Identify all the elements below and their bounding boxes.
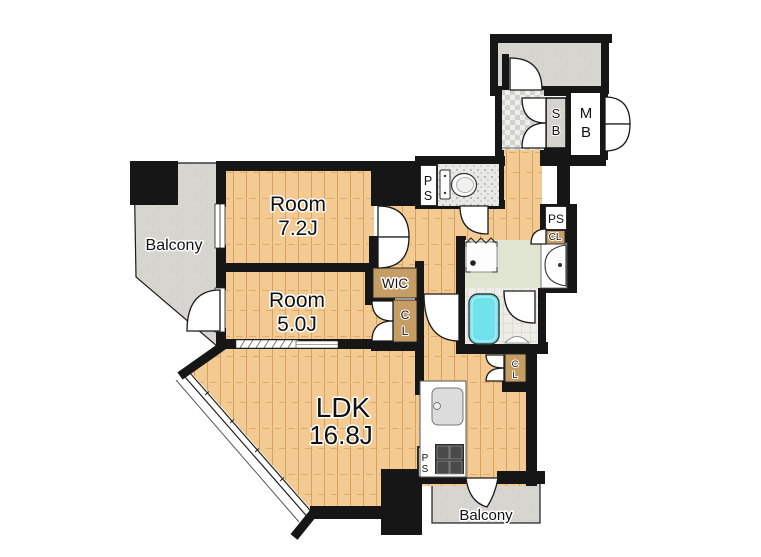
- room2-size: 5.0J: [277, 313, 317, 336]
- ps-toilet-label-2: S: [424, 189, 432, 203]
- mb-label-2: B: [581, 124, 591, 141]
- mb-label-1: M: [580, 105, 593, 122]
- meter-box-door2: [605, 124, 630, 151]
- ldk-name: LDK: [316, 392, 371, 423]
- cl-hall-label: CL: [549, 232, 562, 243]
- washer-pan: [466, 242, 497, 272]
- ps-toilet-label-1: P: [424, 174, 432, 188]
- bathtub: [469, 294, 499, 344]
- cl-ldk-label-2: L: [512, 370, 517, 381]
- room2-name: Room: [269, 289, 325, 312]
- ps-kitchen-label-1: P: [422, 453, 429, 464]
- wic-label: WIC: [382, 276, 408, 291]
- cl-room2-label-1: C: [401, 308, 410, 322]
- ldk-size: 16.8J: [309, 420, 373, 450]
- pillar: [130, 161, 178, 205]
- balcony-left-label: Balcony: [146, 237, 203, 254]
- ps-kitchen-label-2: S: [422, 464, 429, 475]
- kitchen-faucet: [434, 403, 441, 410]
- meter-box-door1: [605, 97, 630, 124]
- cl-ldk-label-1: C: [512, 359, 519, 370]
- sb-label-2: B: [552, 123, 561, 138]
- entrance-door-panel: [502, 54, 509, 90]
- cl-room2-label-2: L: [402, 324, 409, 338]
- ps-hall-label: PS: [548, 212, 564, 226]
- room1-size: 7.2J: [278, 217, 318, 240]
- sb-label-1: S: [552, 106, 561, 121]
- floor-plan: Room 7.2J Room 5.0J LDK 16.8J Balcony Ba…: [0, 0, 761, 557]
- hall-floor: [500, 148, 542, 244]
- floor-plan-page: Room 7.2J Room 5.0J LDK 16.8J Balcony Ba…: [0, 0, 761, 557]
- room1-name: Room: [270, 193, 326, 216]
- balcony-bottom-label: Balcony: [459, 507, 513, 524]
